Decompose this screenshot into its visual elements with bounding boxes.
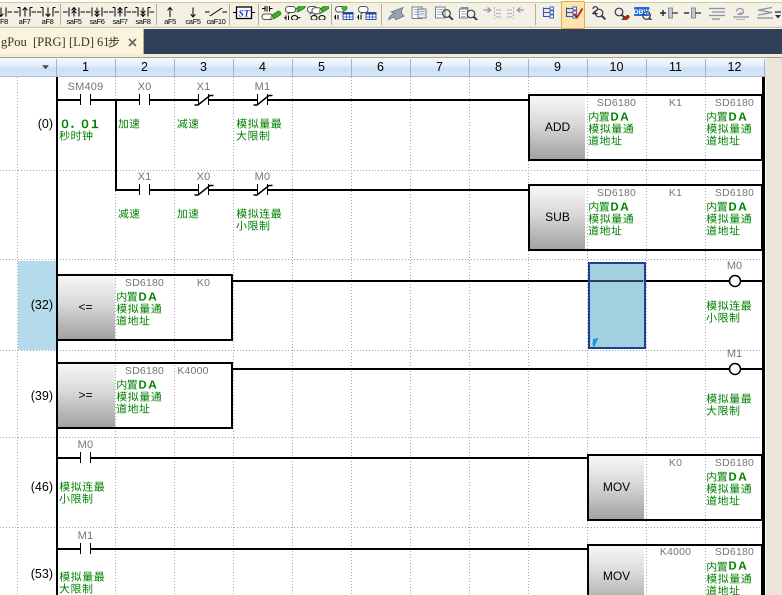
svg-text:ST: ST bbox=[238, 10, 250, 20]
